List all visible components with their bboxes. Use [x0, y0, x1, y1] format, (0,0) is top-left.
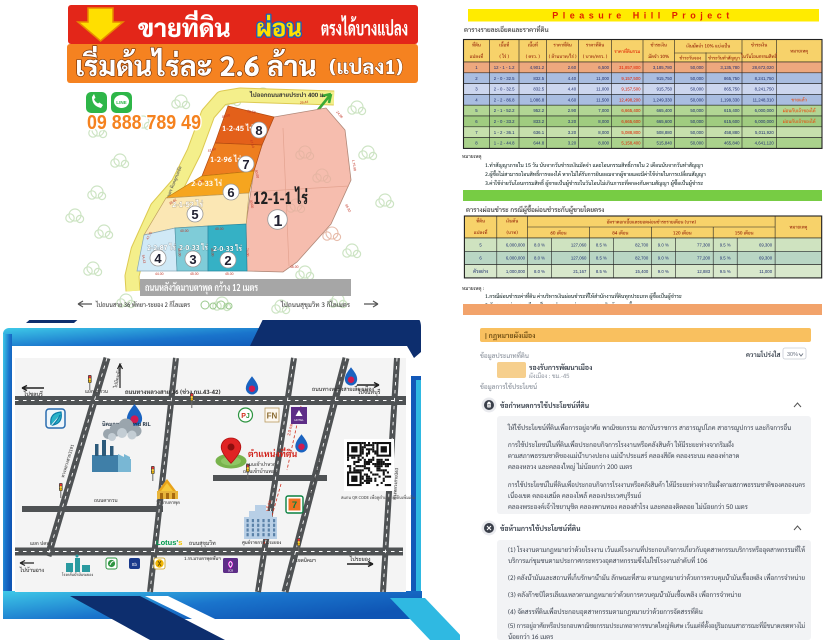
- svg-text:86.82: 86.82: [344, 204, 352, 213]
- svg-text:8.5 %: 8.5 %: [596, 256, 607, 261]
- svg-text:Lotus's: Lotus's: [156, 538, 182, 547]
- svg-text:865,750: 865,750: [724, 87, 740, 92]
- svg-text:50,000: 50,000: [690, 130, 704, 135]
- svg-text:11,000: 11,000: [596, 87, 609, 92]
- svg-text:8.5 %: 8.5 %: [596, 242, 607, 247]
- svg-text:82,700: 82,700: [635, 256, 649, 261]
- svg-text:09 888 789 49: 09 888 789 49: [87, 112, 201, 134]
- svg-text:832.5: 832.5: [533, 76, 544, 81]
- svg-text:69,300: 69,300: [759, 256, 773, 261]
- svg-text:8,000: 8,000: [598, 141, 609, 146]
- svg-text:1,086.8: 1,086.8: [530, 97, 545, 102]
- svg-text:12 - 1 - 1.2: 12 - 1 - 1.2: [494, 65, 515, 70]
- svg-text:515,840: 515,840: [656, 141, 672, 146]
- svg-text:11,000: 11,000: [596, 76, 609, 81]
- svg-text:615,600: 615,600: [724, 119, 740, 124]
- svg-text:3,135,780: 3,135,780: [720, 65, 740, 70]
- svg-text:1,199,330: 1,199,330: [720, 97, 740, 102]
- svg-text:12,883: 12,883: [697, 269, 711, 274]
- svg-text:3,185,780: 3,185,780: [653, 65, 673, 70]
- svg-text:74.00: 74.00: [245, 248, 250, 257]
- svg-text:4: 4: [154, 251, 162, 266]
- svg-text:833.2: 833.2: [533, 119, 544, 124]
- svg-text:46.00: 46.00: [290, 265, 299, 269]
- svg-text:11,500: 11,500: [596, 97, 609, 102]
- svg-text:615,400: 615,400: [724, 108, 740, 113]
- svg-text:127,060: 127,060: [571, 256, 587, 261]
- svg-text:6: 6: [227, 185, 234, 200]
- svg-text:ttb: ttb: [132, 562, 138, 567]
- svg-text:2 - 0 - 33.2: 2 - 0 - 33.2: [494, 119, 515, 124]
- svg-text:24.86: 24.86: [335, 110, 344, 119]
- svg-text:9.0 %: 9.0 %: [658, 256, 669, 261]
- svg-text:50,000: 50,000: [690, 141, 704, 146]
- svg-text:48.00: 48.00: [210, 248, 215, 257]
- svg-text:1 - 2 - 44.8: 1 - 2 - 44.8: [494, 141, 515, 146]
- svg-text:2 - 0 - 32.5: 2 - 0 - 32.5: [494, 76, 515, 81]
- svg-text:636.1: 636.1: [533, 130, 544, 135]
- svg-text:31,857,800: 31,857,800: [619, 65, 641, 70]
- svg-text:4,641,120: 4,641,120: [755, 141, 775, 146]
- svg-text:8,000: 8,000: [598, 130, 609, 135]
- svg-text:1,000,000: 1,000,000: [506, 269, 526, 274]
- svg-text:50,000: 50,000: [690, 119, 704, 124]
- svg-text:7,000: 7,000: [598, 108, 609, 113]
- svg-text:6,000,000: 6,000,000: [506, 256, 526, 261]
- svg-text:3.20: 3.20: [568, 130, 577, 135]
- svg-text:9.0 %: 9.0 %: [658, 242, 669, 247]
- svg-text:644.8: 644.8: [533, 141, 544, 146]
- svg-text:665,400: 665,400: [656, 108, 672, 113]
- svg-text:Pleasure Hill Project: Pleasure Hill Project: [552, 11, 734, 21]
- svg-text:8,000: 8,000: [598, 119, 609, 124]
- svg-text:40.00: 40.00: [180, 229, 189, 233]
- svg-text:11,248,310: 11,248,310: [753, 97, 775, 102]
- svg-text:6,665,400: 6,665,400: [621, 108, 641, 113]
- svg-text:69,300: 69,300: [759, 242, 773, 247]
- svg-text:50,000: 50,000: [690, 76, 704, 81]
- svg-text:6,000,000: 6,000,000: [755, 119, 775, 124]
- svg-text:77,300: 77,300: [697, 242, 711, 247]
- svg-text:8,241,750: 8,241,750: [755, 76, 775, 81]
- svg-text:12,498,200: 12,498,200: [619, 97, 641, 102]
- svg-text:4.40: 4.40: [568, 87, 577, 92]
- svg-text:LINE: LINE: [116, 100, 126, 105]
- svg-text:915,750: 915,750: [656, 76, 672, 81]
- svg-text:465,840: 465,840: [724, 141, 740, 146]
- svg-text:6,000,000: 6,000,000: [506, 242, 526, 247]
- svg-text:2 - 0 - 32.5: 2 - 0 - 32.5: [494, 87, 515, 92]
- svg-text:5,158,400: 5,158,400: [621, 141, 641, 146]
- svg-text:4.60: 4.60: [568, 97, 577, 102]
- svg-text:8,241,750: 8,241,750: [755, 87, 775, 92]
- svg-text:1,249,330: 1,249,330: [653, 97, 673, 102]
- svg-text:6,500: 6,500: [598, 65, 609, 70]
- svg-text:3.20: 3.20: [568, 119, 577, 124]
- svg-text:127,060: 127,060: [571, 242, 587, 247]
- svg-text:1.75.98: 1.75.98: [351, 159, 357, 171]
- svg-text:FN: FN: [267, 412, 278, 421]
- svg-text:40.00: 40.00: [215, 227, 224, 231]
- svg-text:28,672,020: 28,672,020: [752, 65, 774, 70]
- svg-text:50,000: 50,000: [690, 65, 704, 70]
- svg-text:4,901.2: 4,901.2: [530, 65, 545, 70]
- svg-text:8.0 %: 8.0 %: [534, 269, 545, 274]
- svg-text:5,011,920: 5,011,920: [755, 130, 774, 135]
- svg-text:508,880: 508,880: [656, 130, 672, 135]
- svg-text:9.5 %: 9.5 %: [720, 269, 731, 274]
- svg-text:45.00: 45.00: [190, 272, 199, 276]
- svg-text:865,750: 865,750: [724, 76, 740, 81]
- svg-text:2: 2: [224, 253, 231, 268]
- svg-text:2 - 2 - 86.8: 2 - 2 - 86.8: [494, 97, 515, 102]
- svg-text:15,400: 15,400: [635, 269, 649, 274]
- svg-text:8.0 %: 8.0 %: [534, 256, 545, 261]
- svg-text:5,088,800: 5,088,800: [621, 130, 641, 135]
- svg-text:7: 7: [242, 157, 249, 172]
- svg-text:6,000,000: 6,000,000: [755, 108, 775, 113]
- svg-text:48.00: 48.00: [177, 248, 182, 257]
- svg-text:6,665,600: 6,665,600: [621, 119, 641, 124]
- svg-text:458,880: 458,880: [724, 130, 740, 135]
- svg-text:3.20: 3.20: [568, 141, 577, 146]
- svg-text:11,000: 11,000: [759, 269, 772, 274]
- svg-text:9,157,500: 9,157,500: [621, 87, 641, 92]
- svg-text:832.5: 832.5: [533, 87, 544, 92]
- svg-text:44.00: 44.00: [155, 272, 164, 276]
- svg-text:9.5 %: 9.5 %: [720, 256, 731, 261]
- svg-text:3: 3: [189, 252, 196, 267]
- svg-text:8.0 %: 8.0 %: [534, 242, 545, 247]
- svg-text:2.60: 2.60: [568, 65, 577, 70]
- svg-text:50,000: 50,000: [690, 87, 704, 92]
- svg-text:50,000: 50,000: [690, 108, 704, 113]
- svg-text:82,700: 82,700: [635, 242, 649, 247]
- svg-text:915,750: 915,750: [656, 87, 672, 92]
- svg-text:952.2: 952.2: [533, 108, 544, 113]
- svg-text:21,167: 21,167: [573, 269, 587, 274]
- svg-text:77,200: 77,200: [697, 256, 711, 261]
- svg-text:30%: 30%: [787, 352, 798, 358]
- svg-text:9.0 %: 9.0 %: [658, 269, 669, 274]
- svg-text:8: 8: [255, 123, 262, 138]
- svg-text:2 - 1 - 52.2: 2 - 1 - 52.2: [494, 108, 515, 113]
- svg-text:HOTEL: HOTEL: [294, 418, 304, 422]
- svg-text:1 - 2 - 36.1: 1 - 2 - 36.1: [494, 130, 515, 135]
- svg-text:4.40: 4.40: [568, 76, 577, 81]
- svg-text:50,000: 50,000: [690, 97, 704, 102]
- svg-text:665,600: 665,600: [656, 119, 672, 124]
- svg-text:9,157,500: 9,157,500: [621, 76, 641, 81]
- svg-text:PJ: PJ: [241, 413, 250, 420]
- svg-text:7: 7: [292, 500, 297, 511]
- svg-text:8.5 %: 8.5 %: [596, 269, 607, 274]
- svg-text:9.5 %: 9.5 %: [720, 242, 731, 247]
- svg-text:SCB: SCB: [228, 569, 234, 573]
- svg-text:2.90: 2.90: [568, 108, 577, 113]
- svg-text:1: 1: [274, 213, 283, 230]
- svg-text:5: 5: [191, 207, 198, 222]
- svg-text:45.00: 45.00: [225, 272, 234, 276]
